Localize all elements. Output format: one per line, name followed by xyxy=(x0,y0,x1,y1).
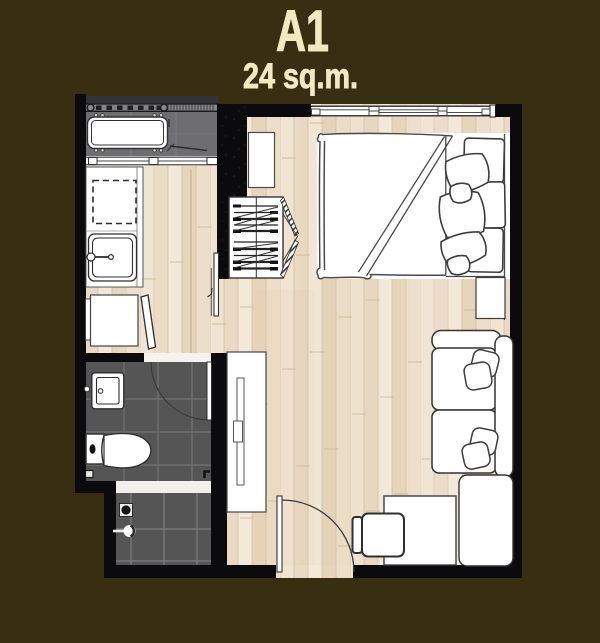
svg-text:A1: A1 xyxy=(276,0,329,64)
svg-text:24 sq.m.: 24 sq.m. xyxy=(243,57,358,96)
